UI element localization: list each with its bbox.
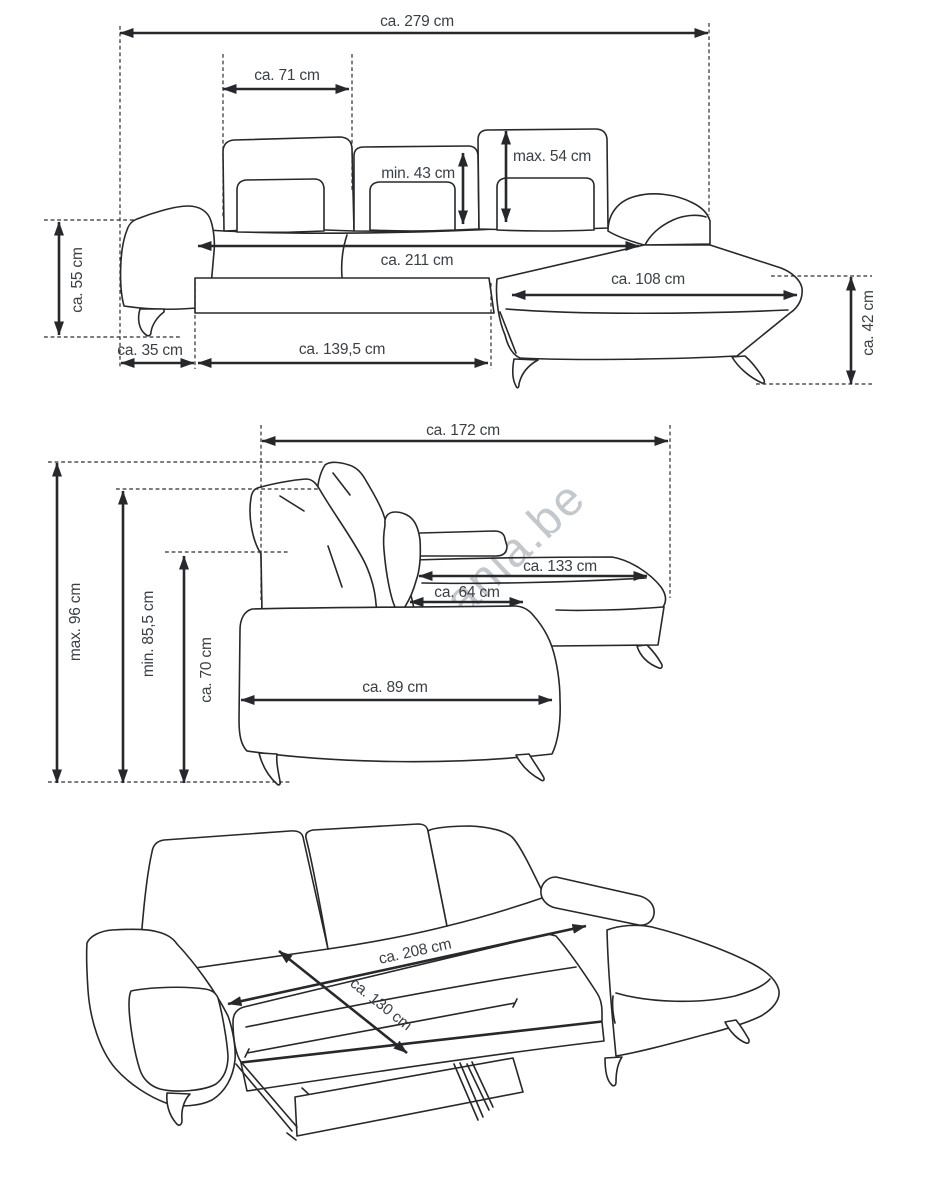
svg-text:min. 43 cm: min. 43 cm	[381, 165, 455, 182]
svg-text:ca. 211 cm: ca. 211 cm	[381, 252, 454, 269]
svg-text:max. 54 cm: max. 54 cm	[513, 148, 591, 165]
svg-text:min. 85,5 cm: min. 85,5 cm	[140, 591, 157, 677]
svg-text:ca. 279 cm: ca. 279 cm	[380, 13, 454, 30]
svg-text:ca. 64 cm: ca. 64 cm	[434, 584, 499, 601]
svg-text:ca. 70 cm: ca. 70 cm	[198, 637, 215, 702]
svg-text:ca. 108 cm: ca. 108 cm	[611, 271, 685, 288]
svg-text:ca. 89 cm: ca. 89 cm	[362, 679, 427, 696]
svg-text:ca. 133 cm: ca. 133 cm	[523, 558, 597, 575]
svg-text:ca. 172 cm: ca. 172 cm	[426, 422, 500, 439]
svg-text:ca. 139,5 cm: ca. 139,5 cm	[299, 341, 385, 358]
svg-text:ca. 42 cm: ca. 42 cm	[860, 290, 877, 355]
svg-text:ca. 35 cm: ca. 35 cm	[117, 342, 182, 359]
svg-text:ca. 55 cm: ca. 55 cm	[69, 247, 86, 312]
svg-text:max. 96 cm: max. 96 cm	[67, 583, 84, 661]
svg-text:ca. 71 cm: ca. 71 cm	[254, 67, 319, 84]
